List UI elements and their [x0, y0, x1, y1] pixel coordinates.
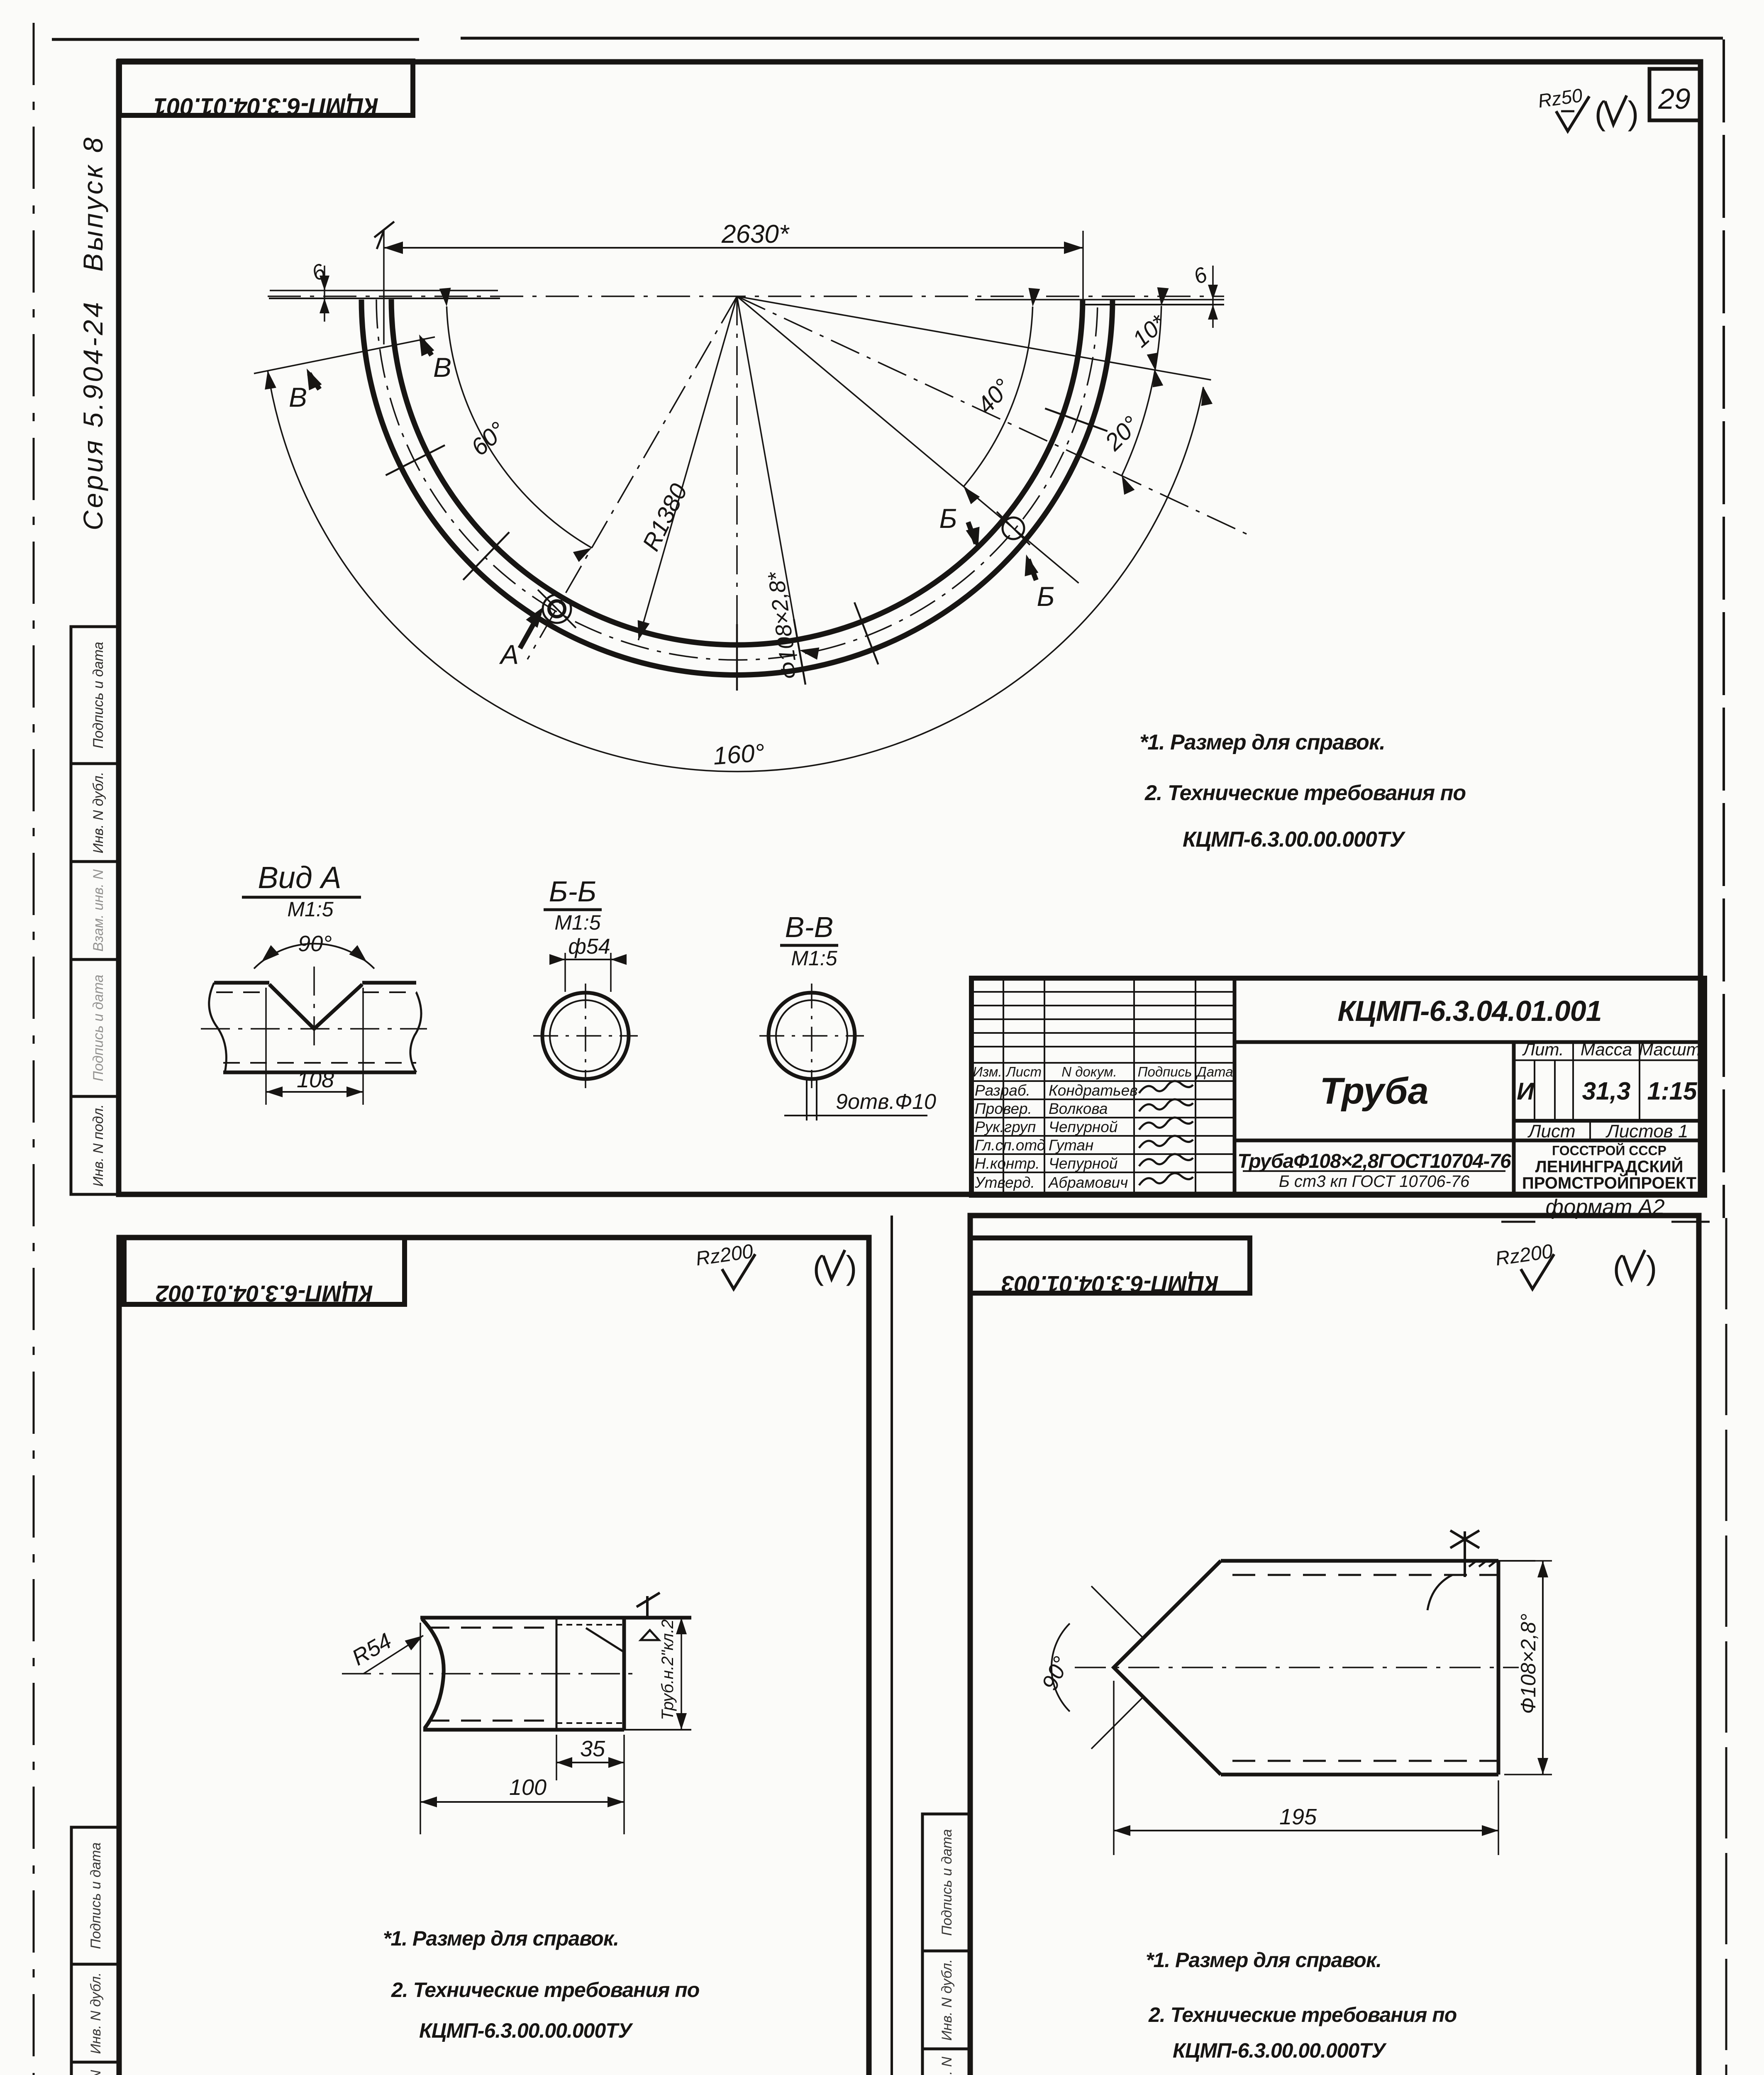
- svg-text:Взам. инв. N: Взам. инв. N: [939, 2057, 955, 2075]
- svg-text:1:15: 1:15: [1647, 1077, 1698, 1105]
- svg-text:В-В: В-В: [785, 911, 834, 943]
- svg-text:): ): [1628, 95, 1639, 132]
- svg-text:9отв.Ф10: 9отв.Ф10: [836, 1090, 936, 1114]
- svg-text:Труб.н.2"кл.2: Труб.н.2"кл.2: [659, 1619, 677, 1720]
- svg-text:35: 35: [580, 1736, 605, 1761]
- svg-text:КЦМП-6.3.00.00.000ТУ: КЦМП-6.3.00.00.000ТУ: [1183, 828, 1406, 852]
- svg-text:Подпись и дата: Подпись и дата: [90, 974, 106, 1081]
- svg-text:Инв. N дубл.: Инв. N дубл.: [90, 772, 106, 854]
- svg-text:90°: 90°: [298, 931, 332, 956]
- svg-text:Взам. инв. N: Взам. инв. N: [90, 869, 106, 952]
- svg-text:Подпись: Подпись: [1138, 1064, 1192, 1079]
- svg-text:Подпись и дата: Подпись и дата: [90, 642, 106, 748]
- svg-text:): ): [846, 1249, 857, 1286]
- svg-text:ТрубаФ108×2,8ГОСТ10704-76: ТрубаФ108×2,8ГОСТ10704-76: [1237, 1150, 1511, 1172]
- svg-text:Чепурной: Чепурной: [1049, 1118, 1117, 1135]
- svg-text:ГОССТРОЙ СССР: ГОССТРОЙ СССР: [1552, 1143, 1666, 1158]
- svg-text:КЦМП-6.3.04.01.001: КЦМП-6.3.04.01.001: [1337, 995, 1601, 1027]
- svg-text:195: 195: [1279, 1804, 1317, 1829]
- svg-text:Лист: Лист: [1005, 1064, 1042, 1079]
- svg-text:КЦМП-6.3.04.01.003: КЦМП-6.3.04.01.003: [1001, 1271, 1218, 1297]
- svg-text:31,3: 31,3: [1582, 1077, 1631, 1105]
- svg-text:Рук.груп: Рук.груп: [975, 1118, 1036, 1135]
- svg-text:2. Технические требования по: 2. Технические требования по: [1148, 2003, 1457, 2026]
- svg-text:6: 6: [1190, 262, 1211, 289]
- svg-text:Изм.: Изм.: [973, 1064, 1002, 1079]
- svg-text:20°: 20°: [1100, 411, 1145, 456]
- svg-text:Гутан: Гутан: [1049, 1137, 1093, 1154]
- svg-text:М1:5: М1:5: [287, 898, 333, 921]
- svg-text:90°: 90°: [1037, 1653, 1074, 1694]
- svg-text:Вид А: Вид А: [258, 860, 341, 895]
- svg-text:Масшт.: Масшт.: [1639, 1040, 1705, 1059]
- svg-text:Гл.сп.отд: Гл.сп.отд: [975, 1137, 1045, 1154]
- svg-text:Б: Б: [1037, 581, 1055, 612]
- svg-text:Чепурной: Чепурной: [1049, 1155, 1117, 1172]
- svg-text:Инв. N дубл.: Инв. N дубл.: [88, 1972, 104, 2054]
- svg-text:Утверд.: Утверд.: [974, 1174, 1035, 1191]
- svg-text:Подпись и дата: Подпись и дата: [939, 1829, 955, 1936]
- svg-text:(: (: [1595, 95, 1606, 132]
- svg-text:(: (: [1613, 1249, 1624, 1286]
- svg-text:Инв. N подл.: Инв. N подл.: [90, 1104, 106, 1187]
- svg-text:М1:5: М1:5: [554, 911, 600, 934]
- svg-text:Взам. инв. N: Взам. инв. N: [88, 2070, 104, 2075]
- svg-text:6: 6: [308, 259, 329, 286]
- svg-text:Ф108×2,8°: Ф108×2,8°: [1517, 1614, 1540, 1714]
- svg-text:N докум.: N докум.: [1061, 1064, 1117, 1079]
- svg-text:КЦМП-6.3.00.00.000ТУ: КЦМП-6.3.00.00.000ТУ: [419, 2019, 634, 2042]
- svg-text:Выпуск 8: Выпуск 8: [78, 135, 108, 271]
- svg-text:Серия 5.904-24: Серия 5.904-24: [78, 300, 108, 530]
- svg-text:Б ст3 кп ГОСТ 10706-76: Б ст3 кп ГОСТ 10706-76: [1279, 1172, 1470, 1191]
- svg-text:R54: R54: [348, 1628, 396, 1670]
- svg-text:100: 100: [509, 1775, 547, 1800]
- svg-text:*1. Размер для справок.: *1. Размер для справок.: [1146, 1948, 1381, 1972]
- svg-text:Листов 1: Листов 1: [1605, 1121, 1688, 1141]
- svg-text:ф54: ф54: [568, 935, 610, 959]
- svg-text:Б: Б: [939, 503, 957, 534]
- svg-text:М1:5: М1:5: [791, 947, 837, 970]
- svg-text:60°: 60°: [466, 417, 511, 461]
- svg-text:*1. Размер для справок.: *1. Размер для справок.: [1139, 730, 1385, 754]
- svg-text:29: 29: [1658, 83, 1691, 115]
- svg-text:R1380: R1380: [637, 479, 693, 555]
- svg-text:Rz200: Rz200: [694, 1240, 754, 1270]
- svg-text:108: 108: [297, 1067, 334, 1092]
- svg-text:Н.контр.: Н.контр.: [975, 1155, 1040, 1172]
- svg-text:ПРОМСТРОЙПРОЕКТ: ПРОМСТРОЙПРОЕКТ: [1522, 1173, 1696, 1192]
- svg-text:Масса: Масса: [1581, 1040, 1632, 1059]
- svg-text:Подпись и дата: Подпись и дата: [88, 1842, 104, 1949]
- svg-text:): ): [1646, 1249, 1657, 1286]
- svg-text:Б-Б: Б-Б: [549, 875, 596, 908]
- svg-text:Лит.: Лит.: [1522, 1040, 1564, 1059]
- svg-text:А: А: [499, 639, 519, 670]
- svg-text:*1. Размер для справок.: *1. Размер для справок.: [383, 1927, 619, 1950]
- svg-text:Ф108×2,8*: Ф108×2,8*: [763, 569, 803, 681]
- svg-text:(: (: [813, 1249, 824, 1286]
- svg-text:2630*: 2630*: [721, 220, 790, 249]
- svg-text:КЦМП-6.3.04.01.002: КЦМП-6.3.04.01.002: [156, 1281, 373, 1307]
- svg-text:Труба: Труба: [1320, 1071, 1428, 1112]
- svg-text:КЦМП-6.3.04.01.001: КЦМП-6.3.04.01.001: [154, 93, 378, 120]
- svg-text:Дата: Дата: [1195, 1064, 1233, 1079]
- svg-text:Инв. N дубл.: Инв. N дубл.: [939, 1959, 955, 2041]
- svg-text:Волкова: Волкова: [1049, 1100, 1108, 1117]
- svg-text:Лист: Лист: [1527, 1121, 1575, 1141]
- svg-text:И: И: [1517, 1078, 1535, 1105]
- svg-text:Абрамович: Абрамович: [1048, 1174, 1128, 1191]
- svg-text:2. Технические требования по: 2. Технические требования по: [391, 1978, 699, 2002]
- svg-text:Разраб.: Разраб.: [975, 1082, 1030, 1099]
- svg-text:160°: 160°: [712, 739, 765, 770]
- svg-text:Rz50: Rz50: [1537, 84, 1584, 112]
- svg-text:10*: 10*: [1127, 309, 1171, 352]
- svg-text:КЦМП-6.3.00.00.000ТУ: КЦМП-6.3.00.00.000ТУ: [1173, 2039, 1387, 2062]
- svg-text:2. Технические требования по: 2. Технические требования по: [1144, 781, 1466, 805]
- svg-text:В: В: [289, 382, 307, 413]
- svg-text:Провер.: Провер.: [975, 1100, 1032, 1117]
- svg-text:ЛЕНИНГРАДСКИЙ: ЛЕНИНГРАДСКИЙ: [1535, 1157, 1683, 1176]
- svg-text:В: В: [433, 352, 451, 383]
- svg-text:Кондратьев: Кондратьев: [1049, 1082, 1138, 1099]
